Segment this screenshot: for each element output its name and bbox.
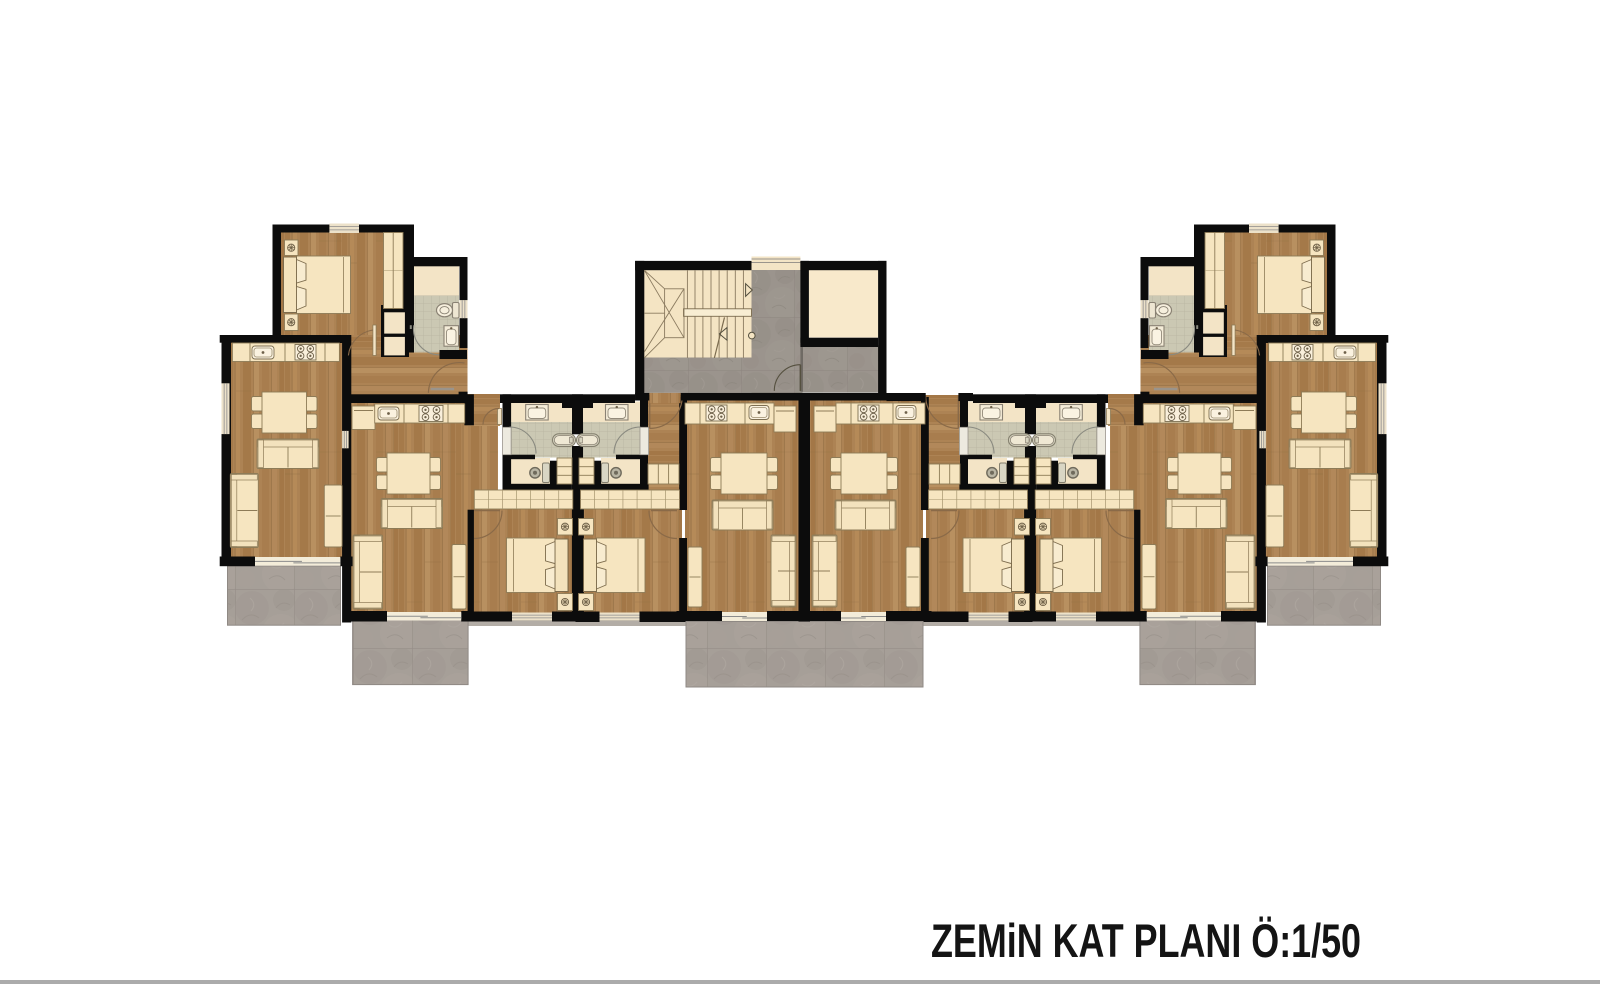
svg-text:ZEMiN KAT PLANI Ö:1/50: ZEMiN KAT PLANI Ö:1/50 — [931, 914, 1361, 967]
